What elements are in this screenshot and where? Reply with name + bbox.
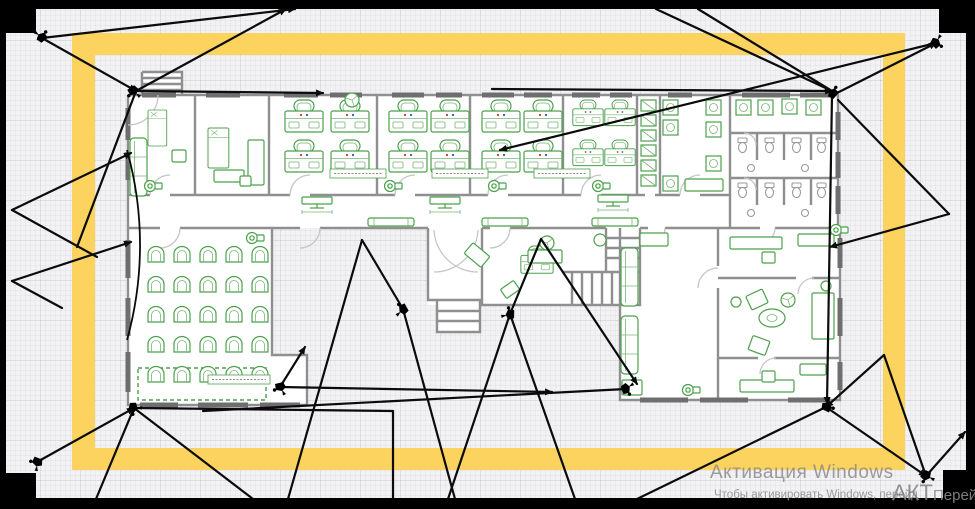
classroom-chair-symbol <box>148 247 164 263</box>
room-label <box>330 169 386 178</box>
sightline <box>12 281 62 308</box>
locker-symbol <box>641 160 656 171</box>
sink-symbol <box>748 210 755 217</box>
furniture-item <box>812 293 834 339</box>
classroom-chair-symbol <box>148 277 164 293</box>
classroom-chair-symbol <box>174 277 190 293</box>
toilet-symbol <box>817 138 826 153</box>
classroom-chair-symbol <box>200 277 216 293</box>
locker-symbol <box>641 100 656 111</box>
sightline <box>448 314 510 499</box>
furniture-item <box>800 364 826 375</box>
furniture-item <box>594 234 606 246</box>
appliance-symbol <box>663 120 678 135</box>
locker-symbol <box>641 145 656 156</box>
round-table-symbol <box>759 309 785 327</box>
bed-symbol <box>148 110 167 146</box>
furniture-item <box>685 179 723 191</box>
classroom-chair-symbol <box>148 337 164 353</box>
sightline <box>362 240 403 309</box>
classroom-chair-symbol <box>226 307 242 323</box>
classroom-chair-symbol <box>174 367 190 383</box>
room-label <box>534 169 590 178</box>
appliance-symbol <box>736 100 751 115</box>
room-label <box>432 169 488 178</box>
classroom-chair-symbol <box>252 247 268 263</box>
sightline <box>12 153 131 210</box>
sink-symbol <box>802 210 809 217</box>
furniture-item <box>730 237 782 249</box>
sink-symbol <box>802 165 809 172</box>
toilet-symbol <box>738 183 747 198</box>
furniture-item <box>731 297 741 307</box>
furniture-item <box>762 371 775 382</box>
classroom-chair-symbol <box>148 367 164 383</box>
camera-icon <box>500 305 516 321</box>
furniture-item <box>762 252 775 263</box>
classroom-chair-symbol <box>200 247 216 263</box>
toilet-symbol <box>792 138 801 153</box>
locker-symbol <box>641 175 656 186</box>
room-label <box>208 375 270 384</box>
appliance-symbol <box>706 156 721 171</box>
toilet-symbol <box>765 138 774 153</box>
appliance-symbol <box>663 176 678 191</box>
camera-icon <box>929 34 947 52</box>
floor-plan-drawing <box>0 0 975 509</box>
appliance-symbol <box>782 99 797 114</box>
furniture-item <box>240 176 251 186</box>
toilet-symbol <box>792 183 801 198</box>
bench-symbol <box>592 218 638 226</box>
classroom-chair-symbol <box>200 337 216 353</box>
appliance-symbol <box>706 122 721 137</box>
locker-symbol <box>641 115 656 126</box>
appliance-symbol <box>758 100 773 115</box>
sightline <box>510 314 575 499</box>
security-floor-plan-canvas: Активация Windows Чтобы активировать Win… <box>0 0 975 509</box>
camera-icon <box>26 454 45 473</box>
classroom-chair-symbol <box>174 247 190 263</box>
ceiling-fan-symbol <box>781 293 795 307</box>
classroom-chair-symbol <box>148 307 164 323</box>
furniture-item <box>172 150 186 162</box>
classroom-chair-symbol <box>226 247 242 263</box>
classroom-chair-symbol <box>226 337 242 353</box>
camera-icon <box>393 301 409 317</box>
sightline <box>492 89 832 91</box>
classroom-chair-symbol <box>252 277 268 293</box>
sightline <box>403 309 455 499</box>
bed-symbol <box>208 128 229 168</box>
sightline <box>12 242 131 281</box>
furniture-item <box>640 233 668 246</box>
toilet-symbol <box>765 183 774 198</box>
toilet-symbol <box>738 138 747 153</box>
toilet-symbol <box>817 183 826 198</box>
sink-symbol <box>748 165 755 172</box>
bench-symbol <box>368 218 414 226</box>
sofa-symbol <box>621 248 638 306</box>
classroom-chair-symbol <box>252 337 268 353</box>
classroom-chair-symbol <box>174 307 190 323</box>
classroom-chair-symbol <box>252 307 268 323</box>
sightline <box>280 387 552 392</box>
locker-symbol <box>641 130 656 141</box>
classroom-chair-symbol <box>174 337 190 353</box>
classroom-chair-symbol <box>226 277 242 293</box>
classroom-chair-symbol <box>200 307 216 323</box>
ceiling-fan-symbol <box>345 93 359 107</box>
bench-symbol <box>482 218 528 226</box>
sightline <box>926 432 965 476</box>
appliance-symbol <box>806 100 821 115</box>
appliance-symbol <box>706 100 721 115</box>
